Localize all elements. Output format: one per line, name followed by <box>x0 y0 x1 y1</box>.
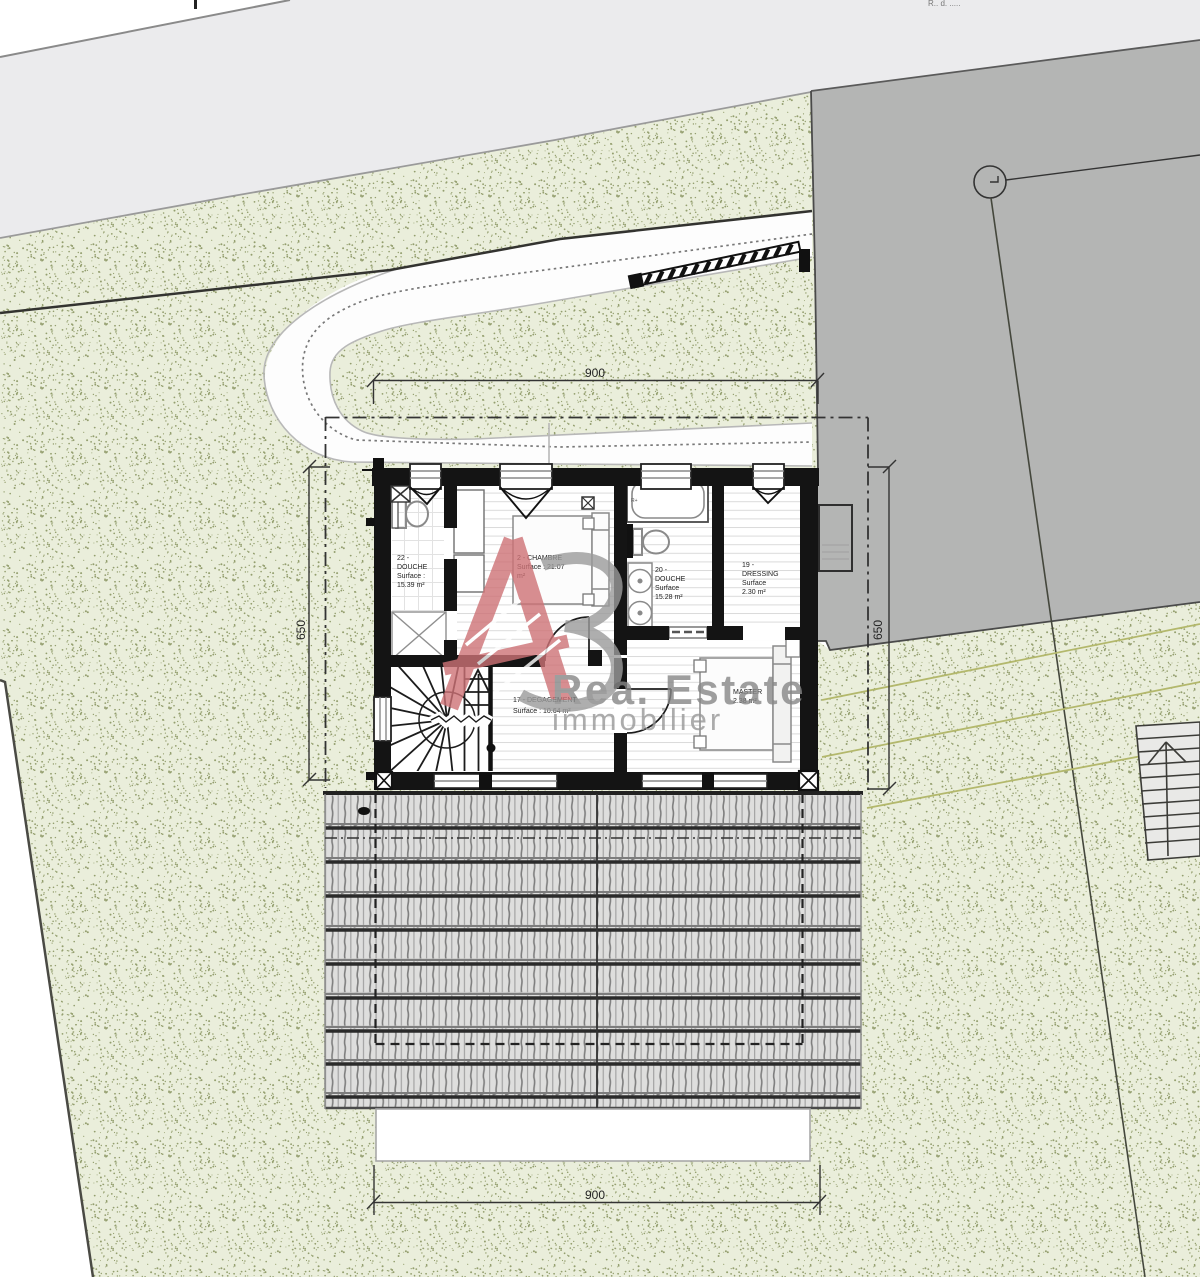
svg-text:immobilier: immobilier <box>552 702 723 737</box>
svg-text:R.. d. .....: R.. d. ..... <box>928 0 960 8</box>
svg-text:R+: R+ <box>631 498 638 504</box>
svg-text:650: 650 <box>871 620 885 640</box>
svg-text:DOUCHE: DOUCHE <box>655 576 686 583</box>
svg-text:900: 900 <box>585 366 605 380</box>
svg-text:15.39 m²: 15.39 m² <box>397 582 425 589</box>
svg-text:22 -: 22 - <box>397 555 410 562</box>
svg-text:Surface: Surface <box>742 580 766 587</box>
svg-text:650: 650 <box>294 620 308 640</box>
svg-text:2.30 m²: 2.30 m² <box>742 589 766 596</box>
svg-text:Surface: Surface <box>655 585 679 592</box>
svg-text:DRESSING: DRESSING <box>742 571 779 578</box>
svg-text:DOUCHE: DOUCHE <box>397 564 428 571</box>
svg-text:Surface :: Surface : <box>397 573 425 580</box>
svg-text:20 -: 20 - <box>655 567 668 574</box>
svg-text:15.28 m²: 15.28 m² <box>655 594 683 601</box>
svg-text:19 -: 19 - <box>742 562 755 569</box>
svg-text:900: 900 <box>585 1188 605 1202</box>
